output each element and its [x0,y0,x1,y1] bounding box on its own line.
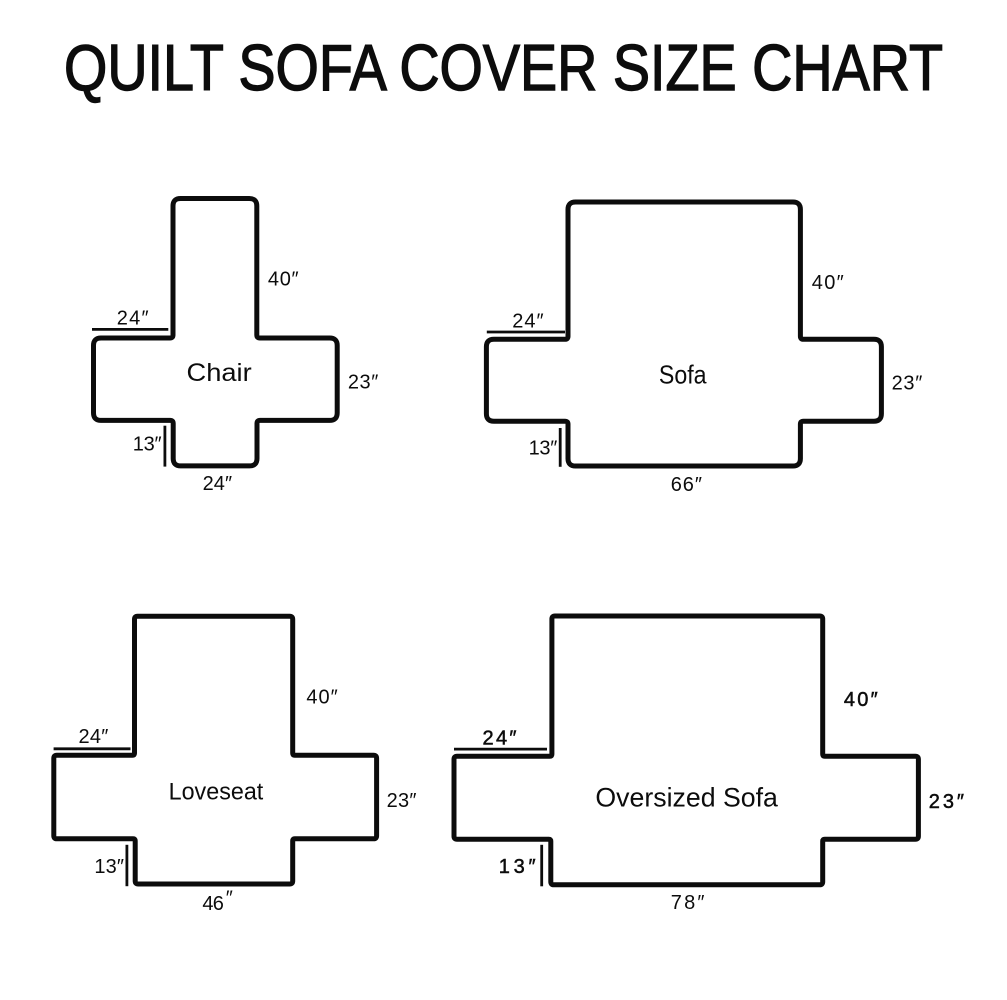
svg-text:24″: 24″ [203,473,233,495]
svg-text:24″: 24″ [79,726,109,748]
svg-text:″: ″ [226,888,233,910]
svg-text:40″: 40″ [306,686,337,708]
svg-text:Sofa: Sofa [659,360,707,390]
svg-text:24″: 24″ [117,307,149,329]
svg-text:13″: 13″ [94,856,124,878]
svg-text:QUILT SOFA COVER SIZE CHART: QUILT SOFA COVER SIZE CHART [64,31,943,104]
svg-text:Chair: Chair [187,359,252,387]
svg-text:24″: 24″ [483,728,517,750]
svg-text:23″: 23″ [892,372,923,394]
svg-text:40″: 40″ [268,269,299,291]
svg-text:24″: 24″ [512,310,543,332]
svg-text:Loveseat: Loveseat [169,779,264,806]
svg-text:23″: 23″ [348,372,378,394]
svg-text:Oversized Sofa: Oversized Sofa [595,782,778,812]
svg-text:13″: 13″ [529,437,558,459]
svg-text:13″: 13″ [499,856,536,878]
svg-text:40″: 40″ [812,272,844,294]
svg-text:23″: 23″ [387,790,417,812]
svg-text:46: 46 [202,893,224,915]
svg-text:40″: 40″ [844,689,878,711]
svg-text:23″: 23″ [929,791,964,813]
svg-text:78″: 78″ [671,892,705,914]
svg-text:13″: 13″ [133,433,162,455]
svg-text:66″: 66″ [671,474,702,496]
